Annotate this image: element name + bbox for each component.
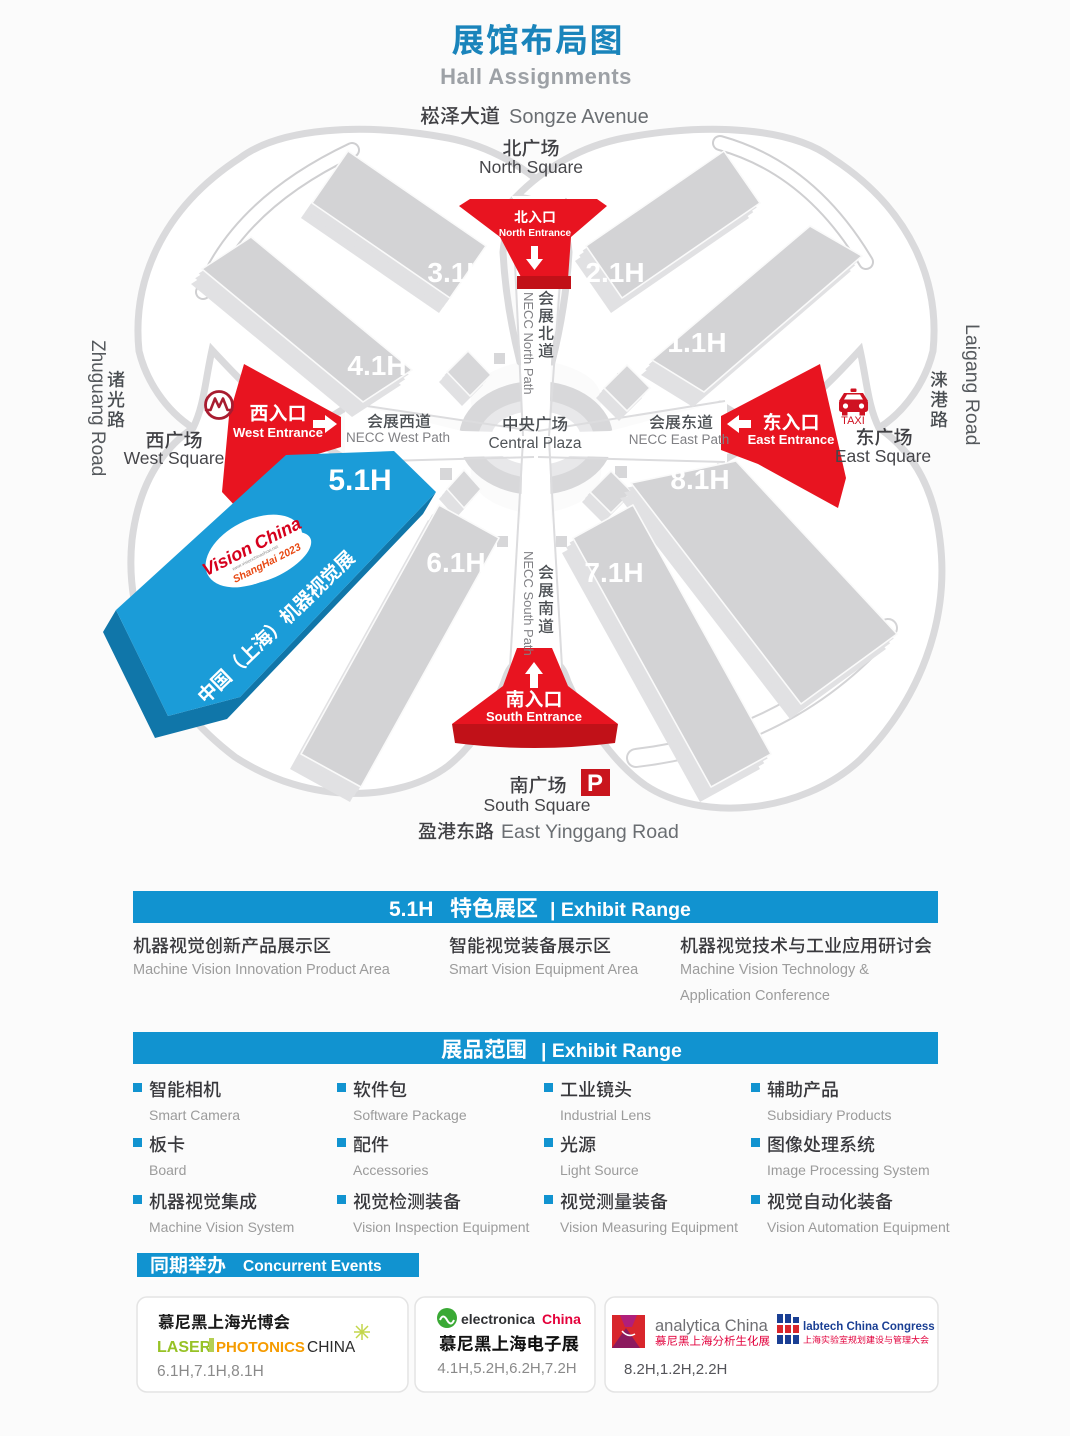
svg-text:TAXI: TAXI bbox=[841, 415, 865, 427]
svg-text:| Exhibit Range: | Exhibit Range bbox=[541, 1040, 682, 1062]
svg-text:Application Conference: Application Conference bbox=[680, 988, 830, 1004]
svg-text:Zhuguang Road: Zhuguang Road bbox=[87, 340, 108, 476]
svg-text:Machine Vision Technology &: Machine Vision Technology & bbox=[680, 962, 869, 978]
svg-text:Hall Assignments: Hall Assignments bbox=[440, 64, 632, 89]
svg-text:North Square: North Square bbox=[479, 157, 583, 177]
svg-text:analytica China: analytica China bbox=[655, 1317, 769, 1335]
svg-text:7.1H: 7.1H bbox=[584, 557, 643, 588]
svg-text:China: China bbox=[542, 1311, 581, 1327]
svg-text:4.1H,5.2H,6.2H,7.2H: 4.1H,5.2H,6.2H,7.2H bbox=[437, 1360, 576, 1377]
svg-text:1.1H: 1.1H bbox=[667, 327, 726, 358]
svg-text:PHOTONICS: PHOTONICS bbox=[216, 1339, 305, 1356]
svg-text:Vision Inspection Equipment: Vision Inspection Equipment bbox=[353, 1219, 530, 1235]
svg-text:3.1H: 3.1H bbox=[427, 257, 486, 288]
svg-text:6.1H,7.1H,8.1H: 6.1H,7.1H,8.1H bbox=[157, 1363, 264, 1380]
svg-text:Smart Vision Equipment Area: Smart Vision Equipment Area bbox=[449, 962, 639, 978]
svg-text:Board: Board bbox=[149, 1162, 186, 1178]
svg-text:NECC West Path: NECC West Path bbox=[346, 430, 450, 445]
svg-text:East Square: East Square bbox=[835, 446, 931, 466]
svg-text:4.1H: 4.1H bbox=[347, 350, 406, 381]
svg-text:South Square: South Square bbox=[483, 795, 590, 815]
svg-text:Software Package: Software Package bbox=[353, 1107, 467, 1123]
svg-text:Light Source: Light Source bbox=[560, 1162, 639, 1178]
svg-text:East Entrance: East Entrance bbox=[748, 432, 835, 447]
svg-text:Vision Measuring Equipment: Vision Measuring Equipment bbox=[560, 1219, 738, 1235]
svg-text:8.1H: 8.1H bbox=[670, 464, 729, 495]
svg-text:Vision Automation Equipment: Vision Automation Equipment bbox=[767, 1219, 950, 1235]
svg-text:Image Processing System: Image Processing System bbox=[767, 1162, 930, 1178]
svg-text:South Entrance: South Entrance bbox=[486, 709, 582, 724]
svg-text:Machine Vision System: Machine Vision System bbox=[149, 1219, 294, 1235]
svg-text:East Yinggang Road: East Yinggang Road bbox=[501, 821, 679, 843]
svg-text:electronica: electronica bbox=[461, 1311, 535, 1327]
svg-text:| Exhibit Range: | Exhibit Range bbox=[550, 899, 691, 921]
svg-text:Subsidiary Products: Subsidiary Products bbox=[767, 1107, 892, 1123]
svg-text:5.1H: 5.1H bbox=[389, 898, 433, 921]
svg-text:8.2H,1.2H,2.2H: 8.2H,1.2H,2.2H bbox=[624, 1361, 727, 1378]
svg-text:labtech China Congress: labtech China Congress bbox=[803, 1321, 935, 1333]
svg-text:5.1H: 5.1H bbox=[328, 464, 391, 497]
svg-text:NECC North Path: NECC North Path bbox=[521, 292, 536, 395]
svg-text:CHINA: CHINA bbox=[307, 1339, 356, 1356]
svg-text:Central Plaza: Central Plaza bbox=[488, 435, 581, 452]
svg-text:Machine Vision Innovation Prod: Machine Vision Innovation Product Area bbox=[133, 962, 391, 978]
svg-text:NECC East Path: NECC East Path bbox=[629, 432, 730, 447]
svg-text:Accessories: Accessories bbox=[353, 1162, 428, 1178]
svg-text:Songze Avenue: Songze Avenue bbox=[509, 106, 649, 128]
svg-text:Laigang Road: Laigang Road bbox=[961, 324, 983, 445]
svg-text:NECC South Path: NECC South Path bbox=[521, 551, 536, 656]
svg-text:P: P bbox=[587, 770, 603, 797]
svg-text:Industrial Lens: Industrial Lens bbox=[560, 1107, 651, 1123]
svg-text:6.1H: 6.1H bbox=[426, 547, 485, 578]
svg-text:2.1H: 2.1H bbox=[585, 257, 644, 288]
svg-text:North Entrance: North Entrance bbox=[499, 228, 572, 239]
svg-text:West Square: West Square bbox=[124, 448, 225, 468]
svg-text:Smart Camera: Smart Camera bbox=[149, 1107, 240, 1123]
svg-text:West Entrance: West Entrance bbox=[233, 425, 323, 440]
svg-text:LASER: LASER bbox=[157, 1339, 212, 1356]
svg-text:Concurrent Events: Concurrent Events bbox=[243, 1258, 382, 1275]
